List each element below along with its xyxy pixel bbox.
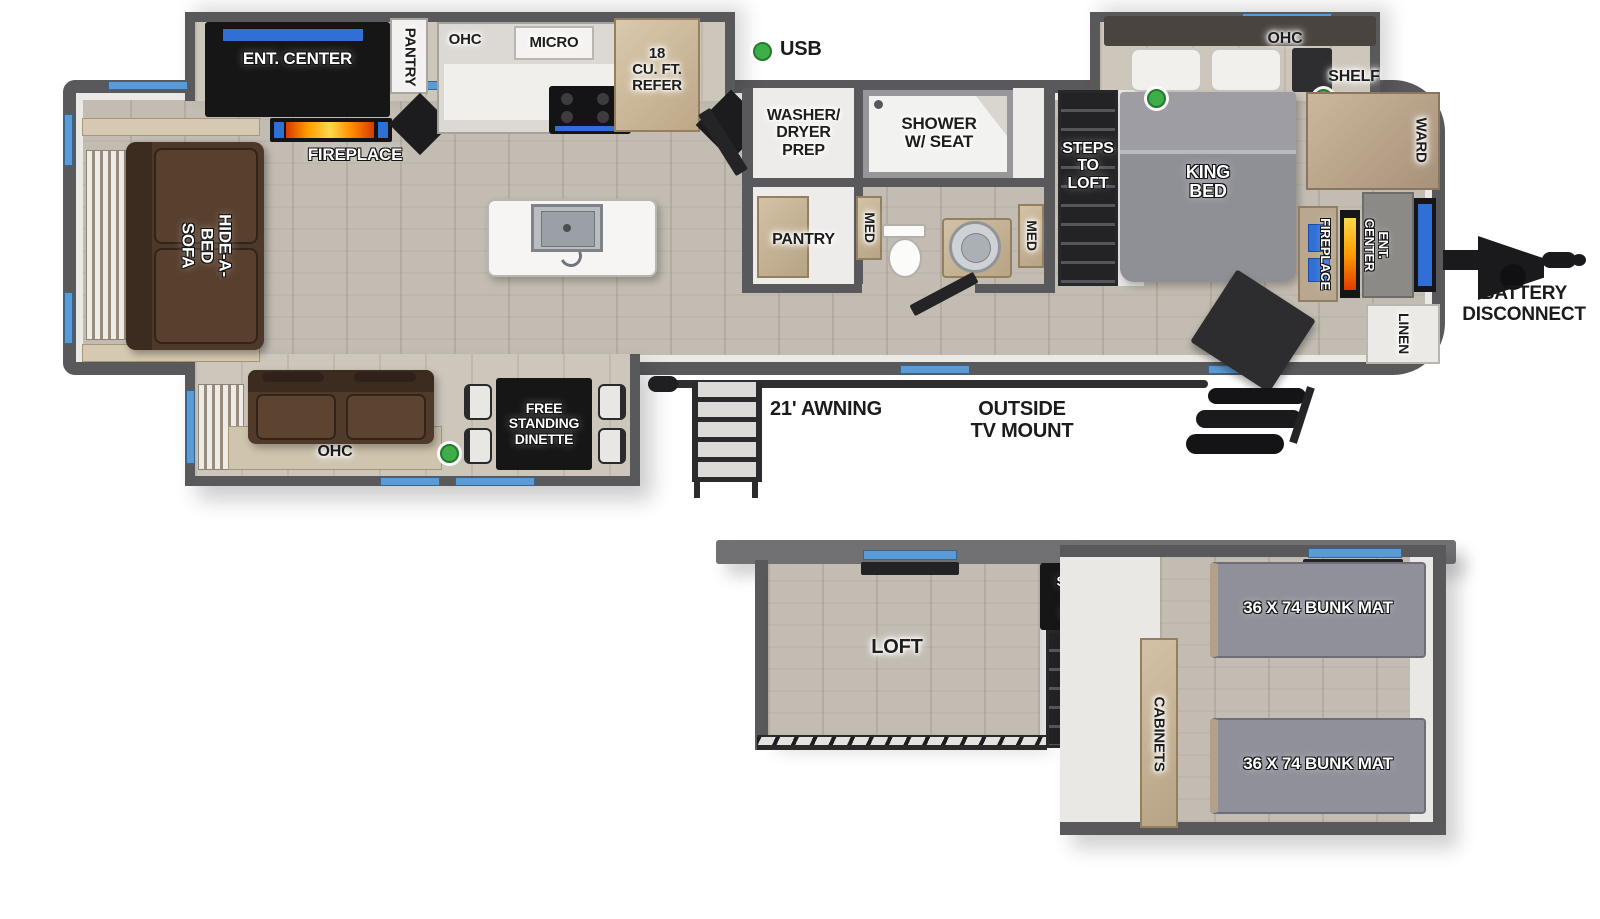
interior-wall xyxy=(854,178,1044,187)
bed-pillow xyxy=(1210,48,1282,92)
bath-sink-basin xyxy=(961,233,991,263)
ward-label: WARD xyxy=(1406,96,1436,184)
ladder-leg xyxy=(752,482,758,498)
loft-railing xyxy=(757,735,1047,750)
shelf-label: SHELF xyxy=(1316,66,1392,88)
usb-label: USB xyxy=(780,38,840,60)
theater-seat-cushion xyxy=(346,394,426,440)
fireplace-glass xyxy=(274,122,284,138)
loft-label: LOFT xyxy=(857,635,937,661)
burner xyxy=(561,111,573,123)
tv-mount-label: OUTSIDE TV MOUNT xyxy=(942,398,1102,443)
window xyxy=(863,550,957,560)
window xyxy=(455,477,535,486)
bunk-mat-bottom-label: 36 X 74 BUNK MAT xyxy=(1218,752,1418,776)
fireplace-glass xyxy=(378,122,388,138)
interior-wall xyxy=(854,88,863,178)
dinette-chair xyxy=(598,384,626,420)
ladder-leg xyxy=(694,482,700,498)
ent-center-label: ENT. CENTER xyxy=(205,44,390,74)
bedroom-ent-center-label: ENT. CENTER xyxy=(1362,196,1390,294)
tv-screen xyxy=(222,28,364,42)
sink-drain xyxy=(563,224,571,232)
entry-fold-step xyxy=(1208,388,1306,404)
pantry-kitchen-label: PANTRY xyxy=(384,20,434,94)
hitch-ball-socket xyxy=(1572,254,1586,266)
awning-roller-cap xyxy=(648,376,678,392)
sofa-label: HIDE-A-BED SOFA xyxy=(166,156,246,336)
entry-fold-step xyxy=(1186,434,1284,454)
bedroom-tv-screen xyxy=(1418,204,1432,286)
med-left-label: MED xyxy=(854,198,884,258)
floorplan-stage: ENT. CENTER FIREPLACE PANTRY OHC MICRO 1… xyxy=(0,0,1600,919)
window xyxy=(380,477,440,486)
sofa-backrest xyxy=(126,142,152,350)
linen-label: LINEN xyxy=(1390,306,1416,362)
fireplace-living-label: FIREPLACE xyxy=(280,144,430,166)
awning-label: 21' AWNING xyxy=(756,398,896,420)
theater-headrest xyxy=(354,372,416,382)
shower-label: SHOWER W/ SEAT xyxy=(866,100,1012,166)
bedroom-ohc-cabinets xyxy=(1104,16,1376,46)
ohc-kitchen-label: OHC xyxy=(438,30,492,50)
king-bed-label: KING BED xyxy=(1150,158,1266,206)
dinette-chair xyxy=(598,428,626,464)
dinette-label: FREE STANDING DINETTE xyxy=(496,390,592,458)
window xyxy=(64,114,73,166)
window xyxy=(1308,548,1402,558)
burner xyxy=(597,93,609,105)
loft-left-wall xyxy=(755,560,768,750)
bed-pillow xyxy=(1130,48,1202,92)
theater-seat-cushion xyxy=(256,394,336,440)
bedroom-fireplace-label: FIREPLACE xyxy=(1312,210,1338,298)
bath-wall-white xyxy=(1013,88,1044,178)
loft-tv xyxy=(861,562,959,575)
hall-pantry-label: PANTRY xyxy=(753,228,854,252)
refer-label: 18 CU. FT. REFER xyxy=(614,30,700,110)
usb-charger-dot xyxy=(753,42,772,61)
theater-headrest xyxy=(262,372,324,382)
bunk-mat-top-label: 36 X 74 BUNK MAT xyxy=(1218,596,1418,620)
usb-charger-dot xyxy=(440,444,459,463)
bedroom-ohc-label: OHC xyxy=(1250,28,1320,50)
washer-dryer-label: WASHER/ DRYER PREP xyxy=(753,92,854,174)
window xyxy=(900,365,970,374)
interior-wall xyxy=(742,88,753,288)
battery-disconnect-label: BATTERY DISCONNECT xyxy=(1448,283,1600,326)
window-valance xyxy=(82,118,260,136)
cabinets-label: CABINETS xyxy=(1139,644,1179,824)
window xyxy=(108,81,188,90)
entry-fold-step xyxy=(1196,410,1302,428)
micro-label: MICRO xyxy=(514,28,594,58)
usb-charger-dot xyxy=(1147,89,1166,108)
bedroom-fireplace-flame xyxy=(1344,218,1356,290)
burner xyxy=(597,111,609,123)
toilet-bowl xyxy=(888,238,922,278)
dinette-chair xyxy=(464,428,492,464)
window xyxy=(64,292,73,344)
med-right-label: MED xyxy=(1016,206,1046,266)
fireplace-flame xyxy=(286,122,374,138)
toilet-tank xyxy=(882,224,926,238)
steps-to-loft-main-label: STEPS TO LOFT xyxy=(1048,120,1128,212)
window xyxy=(186,390,195,464)
interior-wall xyxy=(975,284,1055,293)
interior-wall xyxy=(742,178,854,187)
dinette-chair xyxy=(464,384,492,420)
interior-wall xyxy=(742,284,862,293)
burner xyxy=(561,93,573,105)
hitch-coupler xyxy=(1542,252,1576,268)
entry-steps-ladder xyxy=(692,382,762,482)
